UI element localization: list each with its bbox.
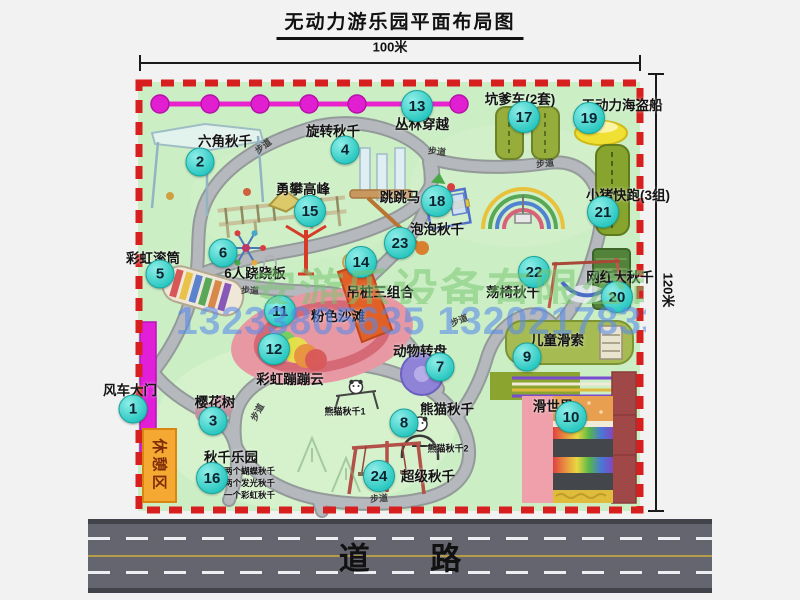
badge-panda-swing: 8 [390,409,419,438]
badge-pirate-ship: 19 [573,102,605,134]
swing-park-note-1: 两个蝴蝶秋千 [224,465,275,477]
badge-rocking-chair-swing: 22 [518,256,550,288]
badge-piggy-run: 21 [587,196,619,228]
label-six-person-seesaw: 6人跷跷板 [224,262,286,282]
badge-rotating-swing: 4 [331,136,360,165]
label-pink-beach: 粉色沙滩 [311,305,365,325]
label-jumping-horse: 跳跳马 [380,186,421,206]
badge-slide-world: 10 [555,401,587,433]
label-hexagon-swing: 六角秋千 [198,130,252,150]
trail-label: 步道 [427,144,446,159]
badge-bubble-swing: 23 [384,227,416,259]
rest-area-label: 休憩区 [149,438,170,492]
label-panda-swing-2: 熊猫秋千2 [427,442,468,455]
badge-rainbow-bounce-cloud: 12 [258,333,290,365]
label-panda-swing-1: 熊猫秋千1 [324,405,365,418]
badge-animal-carousel: 7 [426,353,455,382]
label-rainbow-bounce-cloud: 彩虹蹦蹦云 [256,368,324,388]
badge-cherry-tree: 3 [199,407,228,436]
badge-climb-peak: 15 [294,195,326,227]
badge-pink-beach: 11 [264,295,296,327]
page-title: 无动力游乐园平面布局图 [276,7,523,40]
label-bubble-swing: 泡泡秋千 [410,218,464,238]
badge-six-person-seesaw: 6 [209,239,238,268]
rest-area-box: 休憩区 [142,428,177,503]
badge-hexagon-swing: 2 [186,148,215,177]
trail-label: 步道 [241,283,260,297]
label-kids-zipline: 儿童滑索 [530,329,584,349]
label-panda-swing: 熊猫秋千 [420,398,474,418]
badge-jungle-crossing: 13 [401,90,433,122]
badge-windmill-gate: 1 [119,395,148,424]
trail-label: 步道 [535,156,554,171]
label-super-swing: 超级秋千 [401,465,455,485]
badge-big-swing: 20 [601,281,633,313]
playground-plan-poster: 无动力游乐园平面布局图 100米 120米 安游乐设备有限公司 13233805… [0,0,800,600]
swing-park-note-3: 一个彩虹秋千 [224,489,275,501]
badge-rainbow-roller: 5 [146,260,175,289]
badge-jumping-horse: 18 [421,185,453,217]
badge-super-swing: 24 [363,460,395,492]
badge-swing-park: 16 [196,462,228,494]
label-hanging-post-combo: 吊桩三组合 [346,281,414,301]
road-label: 道 路 [313,534,488,579]
badge-kengdie-car: 17 [508,101,540,133]
trail-label: 步道 [370,491,389,505]
badge-hanging-post-combo: 14 [345,246,377,278]
badge-kids-zipline: 9 [513,343,542,372]
height-dimension-label: 120米 [660,273,679,308]
swing-park-note-2: 两个发光秋千 [224,477,275,489]
width-dimension-label: 100米 [373,37,408,56]
road: 道 路 [88,519,712,593]
label-climb-peak: 勇攀高峰 [276,178,330,198]
